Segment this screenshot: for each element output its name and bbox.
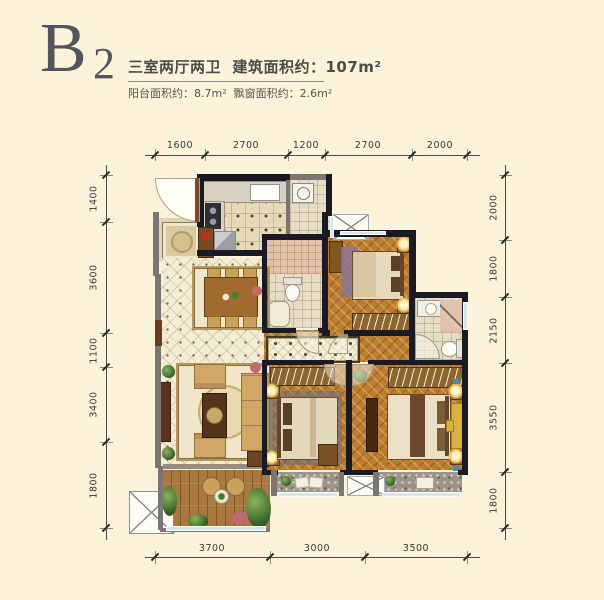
bay-window-glass bbox=[382, 492, 460, 497]
dim-label: 2700 bbox=[229, 140, 263, 151]
wall bbox=[368, 360, 462, 365]
wall bbox=[339, 472, 344, 496]
floorplan-page: B 2 三室两厅两卫 建筑面积约：107m² 阳台面积约：8.7m² 飘窗面积约… bbox=[0, 0, 604, 600]
dim-label: 3700 bbox=[195, 543, 229, 554]
wall bbox=[155, 274, 161, 468]
dim-label: 3000 bbox=[300, 543, 334, 554]
blanket-fold bbox=[310, 398, 316, 457]
wall bbox=[409, 292, 468, 298]
laundry-window bbox=[330, 216, 334, 238]
wall bbox=[409, 230, 416, 298]
wall bbox=[262, 362, 267, 475]
dim-label: 3400 bbox=[89, 388, 100, 422]
bed-north-blanket bbox=[353, 252, 376, 297]
tv-cabinet-master bbox=[366, 398, 378, 452]
pillow bbox=[391, 277, 400, 292]
slippers bbox=[453, 379, 459, 384]
sofa-flowers bbox=[250, 362, 261, 373]
wall bbox=[197, 250, 267, 256]
stove-icon bbox=[205, 203, 221, 229]
wall bbox=[262, 328, 296, 333]
dining-table bbox=[204, 277, 258, 317]
wall bbox=[344, 330, 410, 336]
armchair bbox=[194, 364, 226, 389]
foyer-medallion bbox=[171, 231, 193, 253]
dining-chair bbox=[207, 316, 221, 328]
headboard bbox=[400, 253, 404, 296]
sink-bowl bbox=[425, 303, 437, 315]
dim-label: 3600 bbox=[89, 261, 100, 295]
bath-sink bbox=[268, 301, 290, 327]
dim-label: 1400 bbox=[89, 182, 100, 216]
ac-platform-south bbox=[347, 476, 385, 496]
wall bbox=[326, 174, 332, 216]
plant-icon bbox=[281, 476, 291, 486]
shower-area bbox=[440, 300, 462, 332]
dim-label: 1800 bbox=[489, 484, 500, 518]
wall bbox=[264, 234, 326, 240]
dim-label: 1200 bbox=[289, 140, 323, 151]
flower-bush bbox=[232, 512, 248, 525]
wall bbox=[197, 174, 290, 181]
plant-icon bbox=[162, 447, 175, 460]
dim-label: 2150 bbox=[489, 314, 500, 348]
plant-icon bbox=[162, 486, 177, 516]
dim-label: 2700 bbox=[351, 140, 385, 151]
wall bbox=[318, 328, 328, 333]
dim-label: 2000 bbox=[423, 140, 457, 151]
entry-door-swing bbox=[155, 178, 200, 222]
bay-cushion bbox=[308, 476, 323, 488]
table-flowers bbox=[252, 286, 262, 296]
plant-icon bbox=[162, 365, 175, 378]
dim-label: 1100 bbox=[89, 334, 100, 368]
dim-label: 2000 bbox=[489, 191, 500, 225]
balcony-chair bbox=[226, 477, 245, 496]
dining-chair bbox=[225, 316, 239, 328]
dim-label: 3550 bbox=[489, 401, 500, 435]
foyer-decor-tile bbox=[162, 222, 200, 260]
window bbox=[340, 231, 386, 235]
dim-label: 1600 bbox=[163, 140, 197, 151]
bed-runner bbox=[410, 395, 425, 457]
entry-door-leaf bbox=[195, 178, 199, 222]
dimension-line-bottom bbox=[145, 557, 480, 558]
cabinet-appliance bbox=[202, 232, 210, 239]
wall bbox=[373, 472, 379, 496]
tea-tray bbox=[206, 407, 223, 424]
wall bbox=[153, 212, 159, 276]
wall bbox=[271, 470, 277, 496]
dimension-line-right bbox=[505, 165, 506, 540]
floor-plan: 1600 2700 1200 2700 2000 1400 3600 1100 … bbox=[0, 0, 604, 600]
wall bbox=[458, 470, 468, 475]
dimension-line-top bbox=[145, 155, 480, 156]
wall bbox=[262, 234, 267, 333]
kitchen-sink bbox=[250, 184, 280, 201]
pillow bbox=[283, 403, 292, 425]
bath-window bbox=[463, 302, 468, 330]
balcony-table bbox=[214, 489, 229, 504]
wall-door-panel bbox=[155, 320, 162, 346]
headboard bbox=[277, 397, 281, 458]
bay-tea-tray bbox=[416, 477, 434, 489]
wall bbox=[286, 180, 290, 234]
dim-label: 1800 bbox=[89, 469, 100, 503]
washing-machine-icon bbox=[292, 183, 314, 203]
pillow bbox=[283, 429, 292, 451]
plant-icon bbox=[246, 488, 271, 528]
pillow bbox=[391, 256, 400, 271]
dining-chair bbox=[243, 316, 257, 328]
balcony-window bbox=[166, 526, 266, 531]
dresser bbox=[318, 444, 338, 466]
dim-label: 1800 bbox=[489, 252, 500, 286]
bay-window-glass bbox=[278, 492, 338, 497]
dim-label: 3500 bbox=[399, 543, 433, 554]
washer-drum bbox=[297, 187, 310, 200]
bay-cushion bbox=[294, 476, 309, 489]
wall bbox=[290, 174, 330, 180]
vanity-stool bbox=[446, 420, 454, 432]
shared-bath-shower bbox=[266, 240, 322, 274]
plant-icon bbox=[385, 476, 395, 486]
wall bbox=[158, 466, 163, 530]
